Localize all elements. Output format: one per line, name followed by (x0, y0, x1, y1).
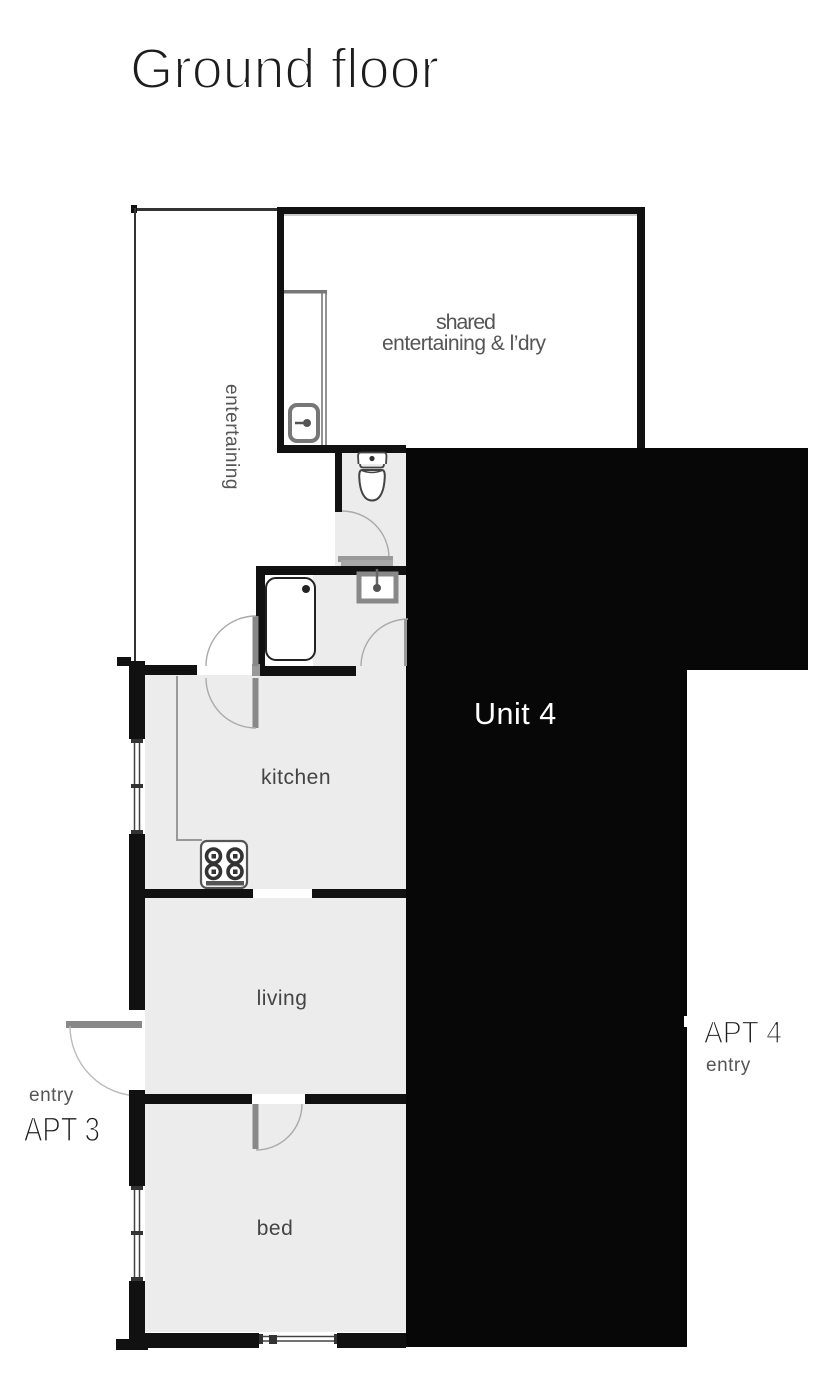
svg-text:APT 3: APT 3 (24, 1111, 100, 1149)
svg-text:kitchen: kitchen (261, 766, 331, 789)
svg-text:APT 4: APT 4 (704, 1014, 782, 1050)
svg-text:Unit 4: Unit 4 (474, 697, 557, 731)
svg-text:bed: bed (257, 1217, 294, 1240)
svg-text:entertaining & l’dry: entertaining & l’dry (382, 332, 547, 355)
svg-text:shared: shared (436, 310, 496, 334)
svg-text:living: living (257, 987, 308, 1010)
svg-text:Ground floor: Ground floor (130, 37, 439, 101)
svg-text:entry: entry (29, 1085, 74, 1106)
svg-text:entry: entry (706, 1055, 751, 1076)
svg-text:entertaining: entertaining (221, 384, 242, 490)
